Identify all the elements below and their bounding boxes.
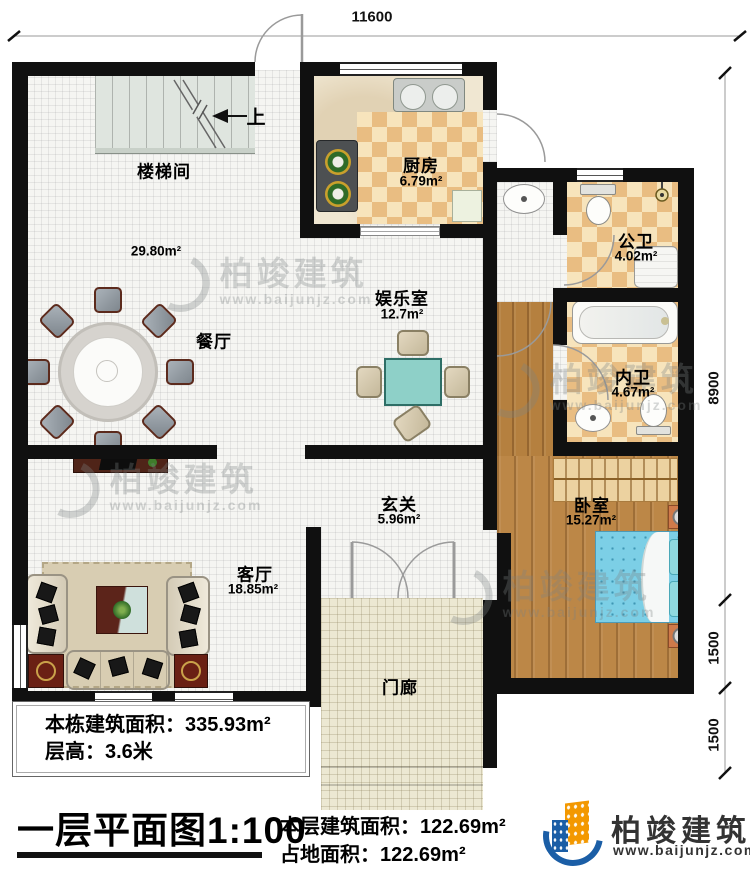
- porch-floor: [321, 598, 483, 810]
- game-table: [384, 358, 442, 406]
- label-private-bath-area: 4.67m²: [612, 385, 655, 400]
- dim-top: 11600: [352, 9, 393, 26]
- dim-right-lower: 1500: [706, 718, 723, 751]
- wall: [12, 62, 28, 625]
- wall: [300, 62, 314, 238]
- wall: [12, 62, 255, 76]
- sofa-main: [66, 650, 170, 690]
- side-table: [174, 654, 208, 688]
- dining-chair: [94, 287, 122, 313]
- wall: [553, 400, 567, 442]
- game-chair: [397, 330, 429, 356]
- label-public-bath-area: 4.02m²: [615, 249, 658, 264]
- plan-title: 一层平面图1:100: [17, 800, 307, 854]
- wall: [306, 527, 321, 693]
- kitchen-sink: [393, 78, 465, 112]
- label-dining: 餐厅: [196, 328, 232, 353]
- floor-area-line: 本层建筑面积：122.69m²: [280, 810, 506, 839]
- company-logo: 柏竣建筑 www.baijunjz.com: [543, 798, 743, 866]
- window: [340, 62, 462, 76]
- label-kitchen-area: 6.79m²: [400, 174, 443, 189]
- wash-basin: [503, 184, 545, 214]
- private-toilet-base: [636, 426, 671, 435]
- wardrobe: [553, 458, 678, 502]
- private-bath-sink: [575, 404, 611, 432]
- label-porch: 门廊: [382, 674, 418, 699]
- label-stairs-up: 上: [246, 103, 265, 130]
- staircase: [95, 76, 255, 152]
- label-dining-area: 29.80m²: [131, 244, 181, 259]
- building-info-box: 本栋建筑面积：335.93m² 层高：3.6米: [12, 701, 310, 777]
- label-bedroom-area: 15.27m²: [566, 513, 616, 528]
- fridge: [452, 190, 482, 222]
- wall: [300, 224, 360, 238]
- porch-step-line: [321, 766, 483, 768]
- footprint-area-line: 占地面积：122.69m²: [280, 838, 466, 867]
- building-total-area: 本栋建筑面积：335.93m²: [45, 712, 305, 739]
- wall: [20, 445, 217, 459]
- dining-chair: [166, 359, 194, 385]
- window: [577, 168, 623, 182]
- wall: [553, 442, 694, 456]
- plant: [148, 458, 157, 467]
- wall: [678, 168, 694, 694]
- wall: [553, 302, 567, 345]
- wall: [483, 600, 497, 768]
- coffee-table-plant: [113, 601, 131, 619]
- wall: [497, 678, 694, 694]
- wall: [305, 445, 483, 459]
- side-table: [28, 654, 64, 688]
- game-chair: [444, 366, 470, 398]
- kitchen-slider-door: [360, 226, 440, 236]
- porch-step-line: [321, 784, 483, 786]
- floor-plan-canvas: 楼梯间 上 29.80m² 餐厅 厨房 6.79m² 娱乐室 12.7m² 公卫…: [0, 0, 750, 872]
- sofa-right: [166, 576, 210, 656]
- wall: [553, 182, 567, 235]
- tv: [99, 459, 137, 470]
- wall: [483, 62, 497, 110]
- corridor-floor: [497, 302, 553, 456]
- label-hallway-area: 5.96m²: [378, 512, 421, 527]
- wall: [553, 288, 694, 302]
- window: [12, 625, 28, 688]
- label-staircase: 楼梯间: [137, 158, 191, 183]
- company-logo-icon: [543, 800, 605, 862]
- sofa-left: [26, 574, 68, 654]
- toilet-tank: [580, 184, 616, 195]
- stove: [316, 140, 358, 212]
- wall: [483, 162, 497, 530]
- dim-right-upper: 8900: [706, 371, 723, 404]
- dining-table-center: [96, 360, 118, 382]
- label-living-area: 18.85m²: [228, 582, 278, 597]
- bathtub: [572, 300, 678, 344]
- toilet-bowl: [586, 196, 611, 225]
- wall: [497, 168, 577, 182]
- wall: [497, 533, 511, 694]
- building-floor-height: 层高：3.6米: [45, 739, 305, 766]
- game-chair: [356, 366, 382, 398]
- company-url: www.baijunjz.com: [613, 842, 750, 858]
- staircase-landing: [95, 148, 255, 154]
- label-entertainment-area: 12.7m²: [381, 307, 424, 322]
- dim-right-mid: 1500: [706, 631, 723, 664]
- plan-title-underline: [17, 852, 262, 858]
